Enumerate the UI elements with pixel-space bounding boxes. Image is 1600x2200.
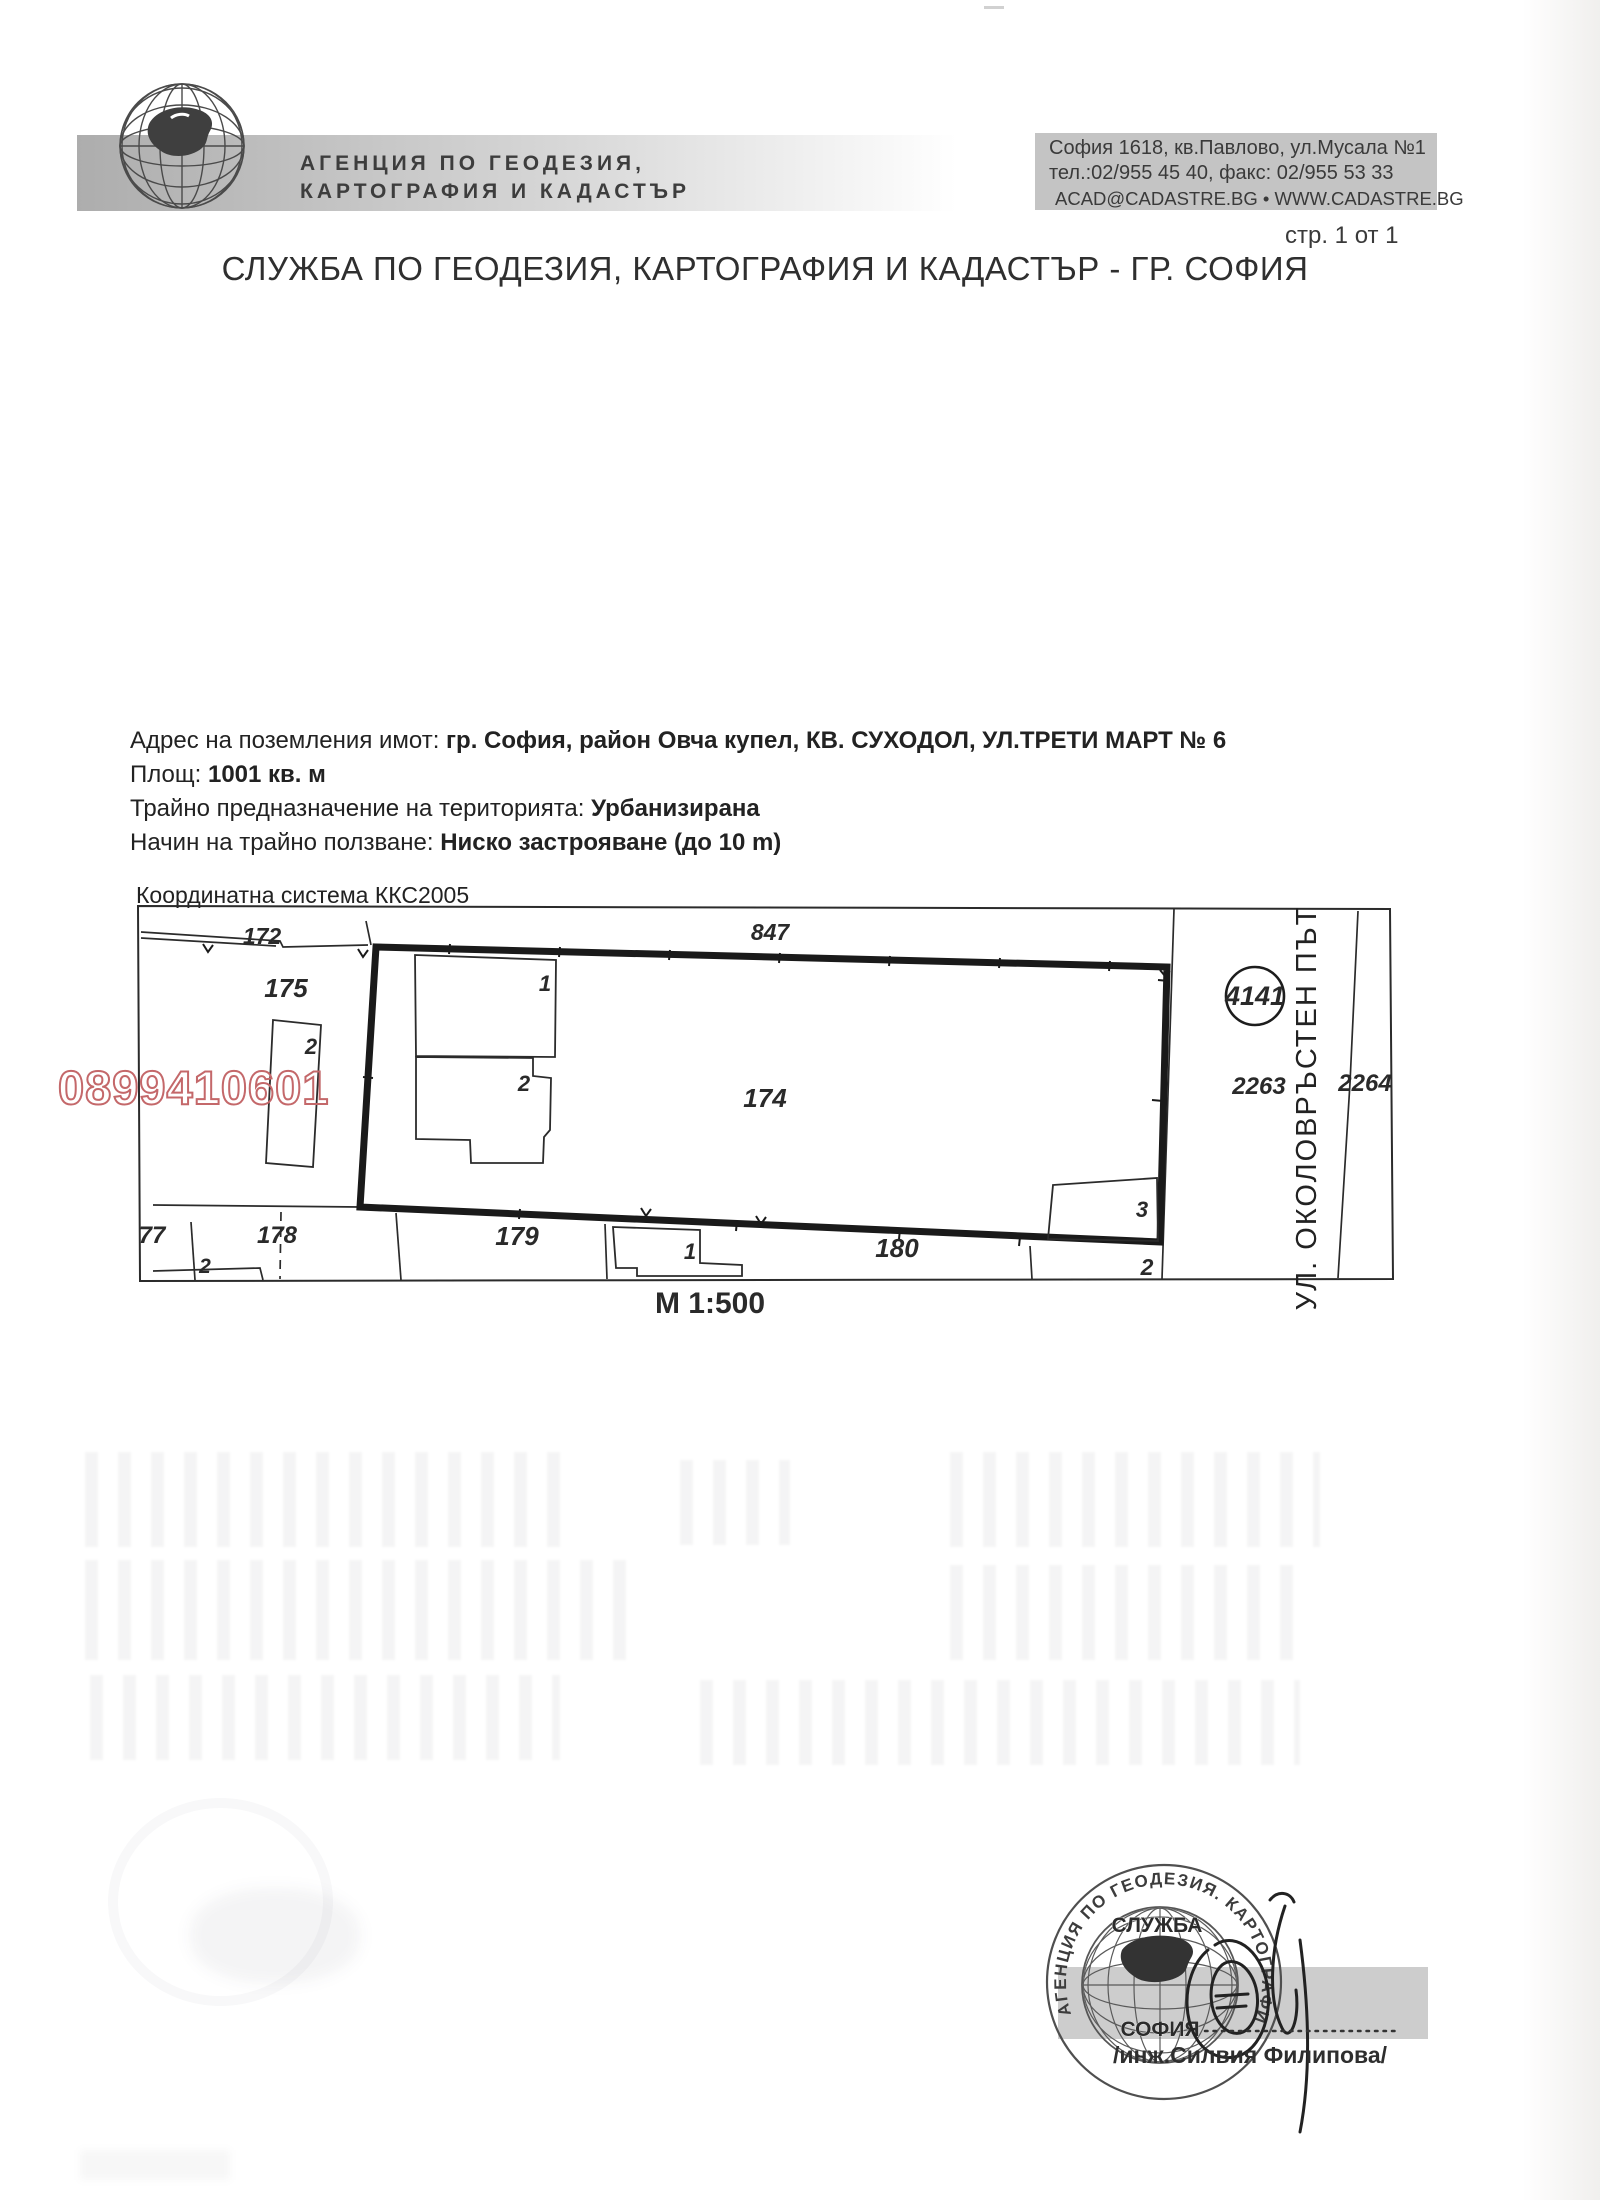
parcel-label-180: 180 [875,1233,919,1263]
signature-gray-band [1058,1967,1428,2039]
boundary-tick-marks [203,944,1170,1246]
parcel-label-2263: 2263 [1231,1073,1286,1100]
parcel-label-847: 847 [751,919,791,945]
street-name-label: УЛ. ОКОЛОВРЪСТЕН ПЪТ [1291,906,1323,1311]
official-round-stamp-icon: АГЕНЦИЯ ПО ГЕОДЕЗИЯ. КАРТОГРАФИЯ И КАДАС… [0,0,1281,2099]
map-scale-label: М 1:500 [655,1287,765,1320]
buildings [266,955,1158,1276]
stamp-ring-text: АГЕНЦИЯ ПО ГЕОДЕЗИЯ. КАРТОГРАФИЯ И КАДАС… [0,0,1277,2027]
parcel-label-174: 174 [743,1083,787,1113]
parcel-label-77: 77 [139,1222,167,1249]
building-label-180-1: 1 [684,1239,696,1264]
parcel-label-179: 179 [495,1221,539,1251]
scanned-cadastre-document: АГЕНЦИЯ ПО ГЕОДЕЗИЯ, КАРТОГРАФИЯ И КАДАС… [0,0,1600,2200]
survey-point-number: 4141 [1224,981,1285,1011]
building-label-174-2: 2 [517,1071,531,1096]
building-outline-180-1 [613,1227,742,1276]
parcel-label-2264: 2264 [1337,1070,1391,1097]
parcel-label-172: 172 [243,923,282,949]
stamp-banner-bottom: СОФИЯ [1120,2018,1199,2041]
signer-name: /инж.Силвия Филипова/ [1113,2042,1388,2068]
svg-text:АГЕНЦИЯ ПО ГЕОДЕЗИЯ. КАРТОГРАФ: АГЕНЦИЯ ПО ГЕОДЕЗИЯ. КАРТОГРАФИЯ И КАДАС… [0,0,1277,2027]
building-outline-174-1 [415,955,556,1057]
cadastral-map: 4141 172 847 175 174 77 178 179 180 2263… [0,0,1600,2200]
subparcel-label-2-left: 2 [198,1255,211,1278]
stamp-banner-top: СЛУЖБА [1112,1914,1203,1937]
building-label-174-1: 1 [539,971,551,996]
parcel-label-175: 175 [264,973,308,1003]
building-label-174-3: 3 [1136,1197,1148,1222]
building-outline-174-2 [416,1057,551,1163]
parcel-label-178: 178 [257,1222,298,1249]
subparcel-label-2-right: 2 [1140,1254,1154,1280]
phone-number-watermark: 0899410601 [58,1061,329,1114]
building-label-175-2: 2 [304,1034,318,1059]
